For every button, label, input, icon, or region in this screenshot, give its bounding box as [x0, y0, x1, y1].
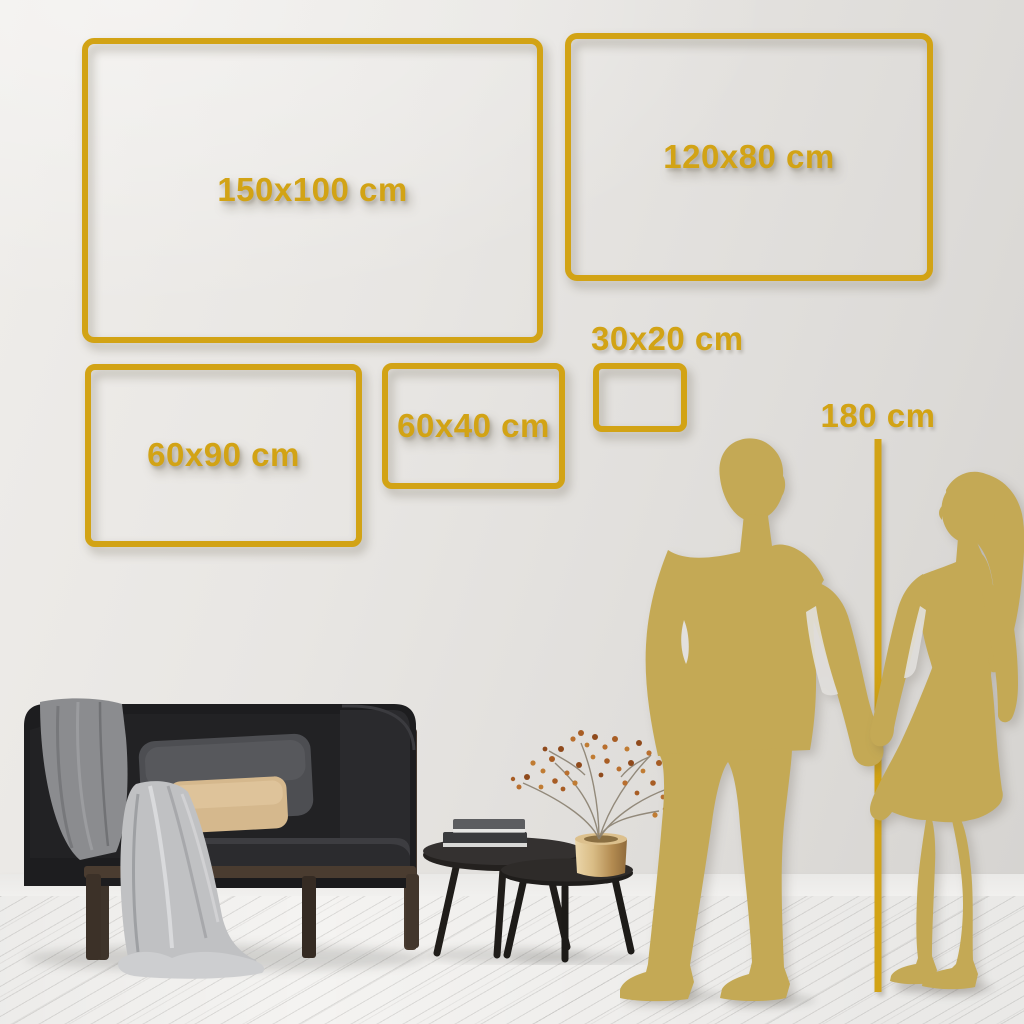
size-label-30x20: 30x20 cm — [591, 322, 744, 357]
size-label-60x90: 60x90 cm — [147, 438, 300, 473]
books — [443, 819, 527, 847]
table-large — [423, 837, 583, 955]
couple-silhouette — [620, 420, 1024, 1020]
frame-120x80: 120x80 cm — [565, 33, 933, 281]
tables-floor-shadow — [420, 947, 650, 965]
frame-60x90: 60x90 cm — [85, 364, 362, 547]
woman-silhouette — [870, 472, 1024, 989]
frame-60x40: 60x40 cm — [382, 363, 565, 489]
size-label-60x40: 60x40 cm — [397, 409, 550, 444]
size-label-120x80: 120x80 cm — [663, 140, 834, 175]
sofa-illustration — [10, 690, 430, 980]
size-label-150x100: 150x100 cm — [217, 173, 407, 208]
man-silhouette — [620, 438, 884, 1001]
size-guide-scene: 150x100 cm 120x80 cm 60x90 cm 60x40 cm 3… — [0, 0, 1024, 1024]
frame-150x100: 150x100 cm — [82, 38, 543, 343]
